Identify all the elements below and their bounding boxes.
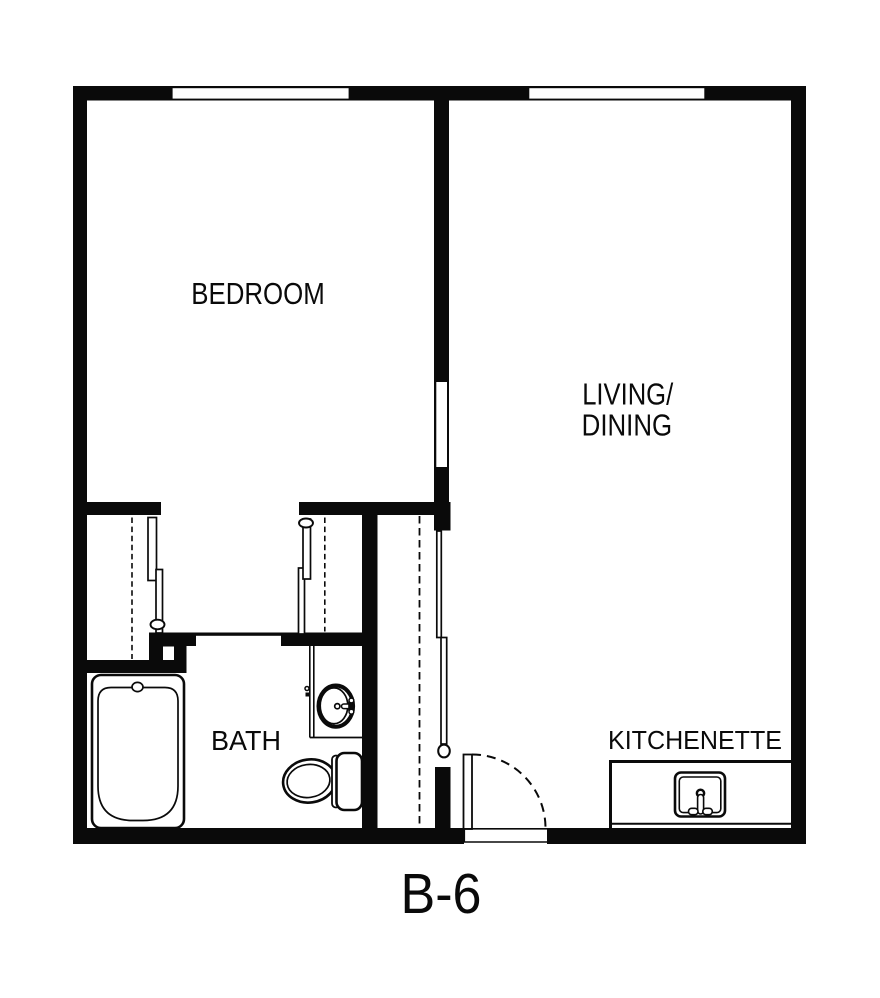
svg-text:KITCHENETTE: KITCHENETTE (608, 727, 782, 755)
svg-text:BATH: BATH (211, 725, 281, 756)
svg-text:DINING: DINING (582, 409, 673, 443)
svg-text:BEDROOM: BEDROOM (191, 276, 325, 311)
svg-text:B-6: B-6 (401, 862, 482, 926)
svg-text:LIVING/: LIVING/ (582, 378, 673, 412)
